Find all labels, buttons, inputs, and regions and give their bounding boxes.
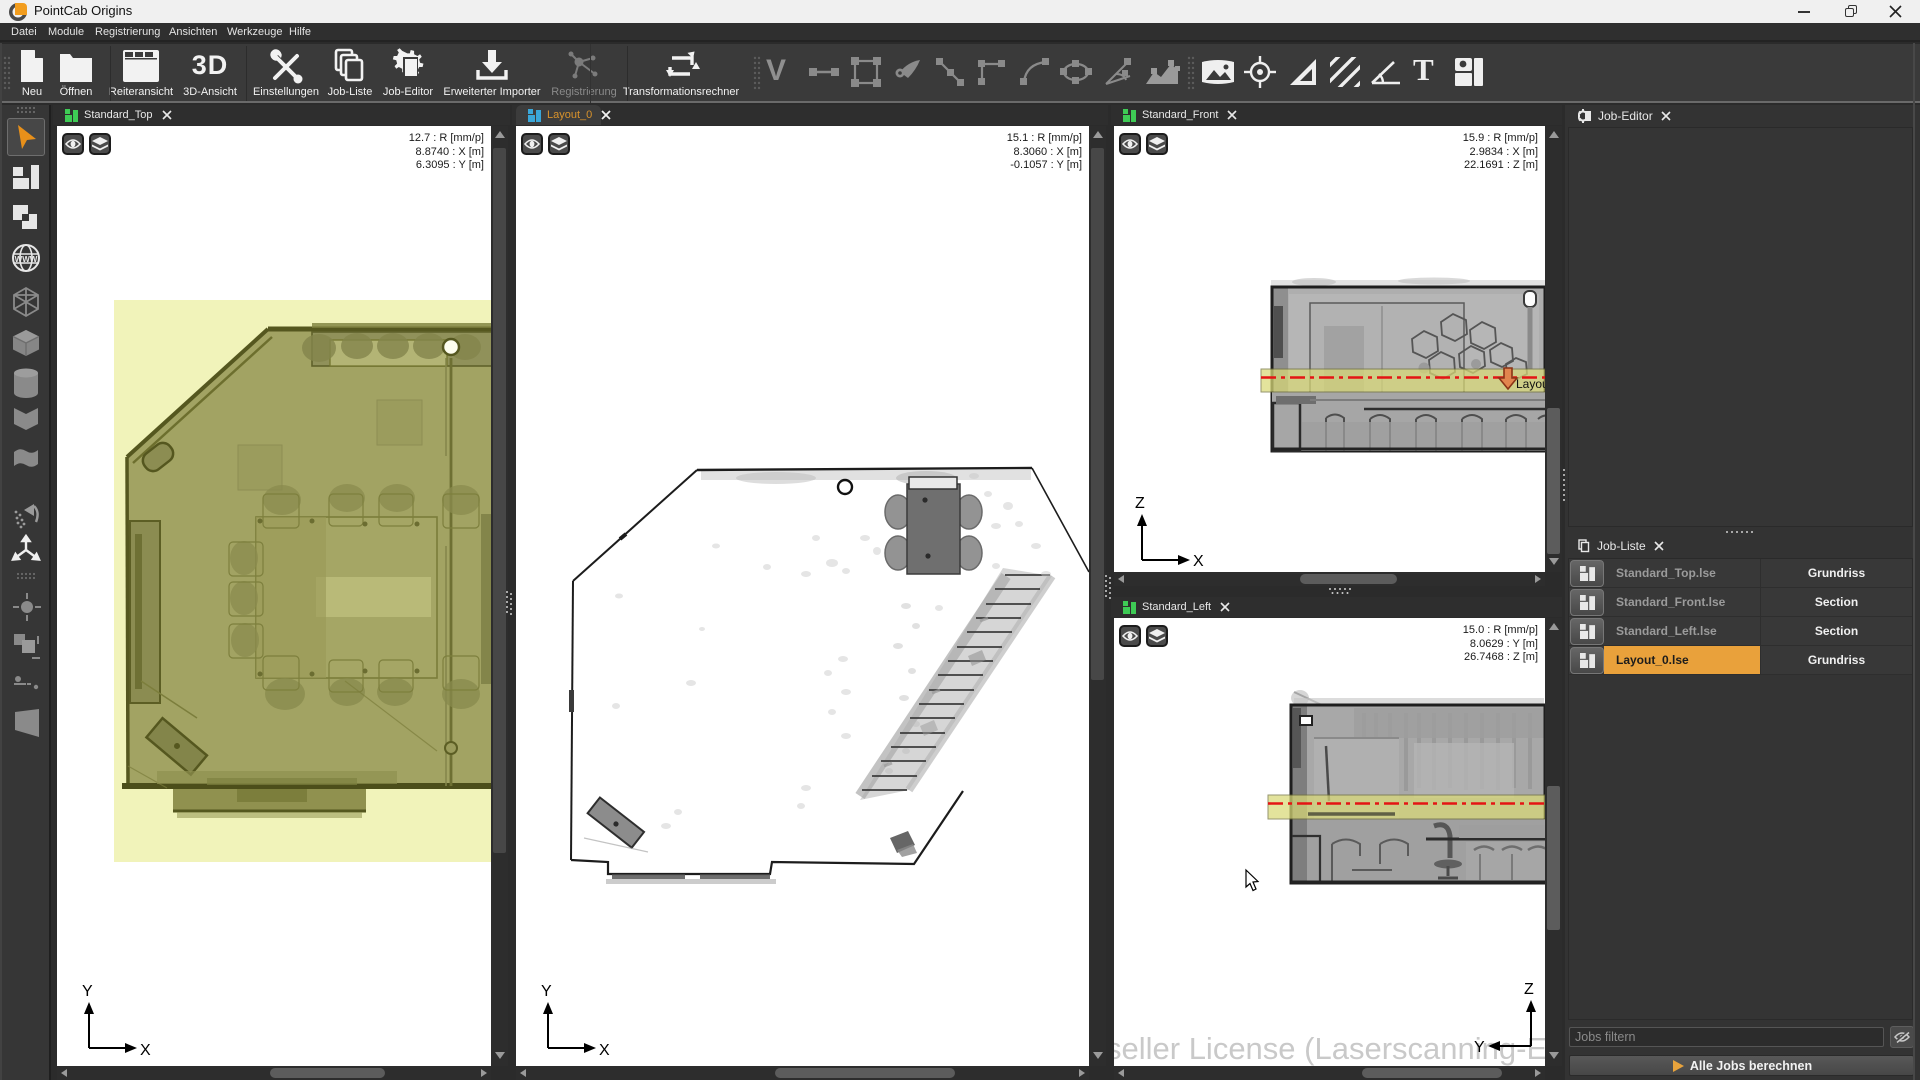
- svg-text:X: X: [599, 1042, 610, 1058]
- svg-text:Layout: Layout: [1516, 377, 1545, 391]
- svg-text:WWW: WWW: [15, 255, 38, 264]
- svg-text:Y: Y: [1474, 1039, 1485, 1056]
- svg-text:Y: Y: [82, 983, 93, 1000]
- svg-text:Y: Y: [541, 983, 552, 1000]
- svg-text:X: X: [1193, 553, 1204, 568]
- svg-text:X: X: [140, 1042, 151, 1058]
- svg-text:Z: Z: [1524, 981, 1534, 998]
- svg-text:Z: Z: [1135, 495, 1145, 512]
